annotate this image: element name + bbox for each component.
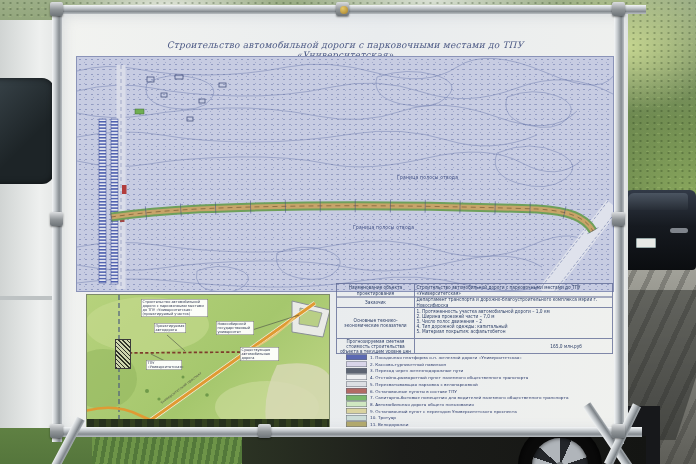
right-of-way-label-bottom: Граница полосы отвода	[353, 225, 414, 230]
frame-clamp	[50, 2, 63, 16]
information-board: Строительство автомобильной дороги с пар…	[62, 14, 628, 432]
frame-clamp	[258, 424, 271, 438]
inset-note: Строительство автомобильной дороги с пар…	[141, 299, 208, 317]
car-windshield	[628, 193, 688, 210]
legend-item: 3. Переход через железнодорожные пути	[346, 367, 612, 374]
car-license-plate	[636, 238, 656, 248]
legend-label: 9. Остановочный пункт с переездом Универ…	[370, 408, 517, 413]
inset-label-existing-road: Существующая автомобильная дорога	[240, 347, 279, 361]
frame-clamp	[50, 424, 63, 438]
table-row-label: Наименование объекта проектирования	[337, 284, 415, 298]
table-row-label: Прогнозируемая сметная стоимость строите…	[337, 339, 415, 354]
legend-item: 10. Тротуар	[346, 414, 612, 421]
frame-clamp	[612, 212, 625, 226]
legend-swatch	[346, 408, 367, 414]
legend-swatch	[346, 355, 367, 361]
legend-item: 2. Кассово-турникетный павильон	[346, 361, 612, 368]
map-drawing	[77, 57, 613, 291]
inset-label-university: Новосибирский государственный университе…	[216, 321, 254, 335]
table-row-indicators: 1. Протяженность участка автомобильной д…	[415, 308, 613, 339]
inset-label-prospekt: Университетский проспект	[160, 371, 203, 405]
legend-label: 10. Тротуар	[370, 415, 396, 420]
inset-labels: Строительство автомобильной дороги с пар…	[87, 295, 329, 427]
dark-car	[620, 190, 696, 270]
frame-clamp	[50, 212, 63, 226]
main-topographic-map: Граница полосы отвода Граница полосы отв…	[76, 56, 614, 292]
car-headlight	[670, 228, 688, 233]
inset-label-tpu: ТПУ «Университетская»	[146, 360, 182, 370]
situation-inset-map: Строительство автомобильной дороги с пар…	[86, 294, 330, 428]
legend-item: 1. Посадочная платформа о.п. железной до…	[346, 354, 612, 361]
projected-road-alignment	[111, 206, 593, 231]
legend-label: 6. Остановочные пункты в составе ТПУ	[370, 388, 457, 393]
legend-label: 8. Автомобильная дорога общего пользован…	[370, 402, 474, 407]
legend-label: 7. Санитарно-бытовые помещения для водит…	[370, 395, 568, 400]
table-row-value: Строительство автомобильной дороги с пар…	[415, 284, 613, 298]
map-legend: 1. Посадочная платформа о.п. железной до…	[346, 354, 612, 428]
legend-item: 9. Остановочный пункт с переездом Универ…	[346, 408, 612, 415]
legend-label: 3. Переход через железнодорожные пути	[370, 368, 463, 373]
van-window	[0, 78, 54, 184]
legend-label: 2. Кассово-турникетный павильон	[370, 362, 446, 367]
parking-strips	[99, 119, 118, 284]
legend-item: 8. Автомобильная дорога общего пользован…	[346, 401, 612, 408]
legend-swatch	[346, 368, 367, 374]
legend-item: 6. Остановочные пункты в составе ТПУ	[346, 387, 612, 394]
photo-of-construction-board: Строительство автомобильной дороги с пар…	[0, 0, 696, 464]
inset-label-projected-road: Проектируемая автодорога	[154, 323, 186, 333]
legend-swatch	[346, 361, 367, 367]
grass-under-board	[92, 436, 242, 464]
legend-swatch	[346, 415, 367, 421]
legend-item: 7. Санитарно-бытовые помещения для водит…	[346, 394, 612, 401]
right-of-way-label-top: Граница полосы отвода	[397, 175, 458, 180]
board-content: Строительство автомобильной дороги с пар…	[62, 14, 628, 432]
legend-swatch	[346, 395, 367, 401]
legend-item: 5. Перехватывающая парковка с велопарков…	[346, 381, 612, 388]
project-info-table: Наименование объекта проектирования Стро…	[336, 283, 612, 353]
table-row-value: Департамент транспорта и дорожно-благоус…	[415, 297, 613, 308]
contour-lines	[77, 58, 613, 291]
indicator-line: 5. Материал покрытия: асфальтобетон	[417, 329, 611, 334]
table-row-label: Заказчик	[337, 297, 415, 308]
frame-clamp	[612, 2, 625, 16]
legend-item: 4. Отстойно-разворотный пункт наземного …	[346, 374, 612, 381]
legend-swatch	[346, 375, 367, 381]
frame-clamp	[612, 424, 625, 438]
legend-label: 4. Отстойно-разворотный пункт наземного …	[370, 375, 528, 380]
gold-knob	[340, 6, 348, 14]
frame-bottom-rail	[58, 427, 642, 437]
table-row-cost: 165,0 млн.руб	[415, 339, 613, 354]
legend-swatch	[346, 381, 367, 387]
legend-swatch	[346, 401, 367, 407]
legend-label: 1. Посадочная платформа о.п. железной до…	[370, 355, 522, 360]
legend-label: 5. Перехватывающая парковка с велопарков…	[370, 382, 478, 387]
alloy-rim	[532, 438, 588, 464]
legend-swatch	[346, 388, 367, 394]
buildings	[147, 75, 226, 121]
table-row-label: Основные технико-экономические показател…	[337, 308, 415, 339]
